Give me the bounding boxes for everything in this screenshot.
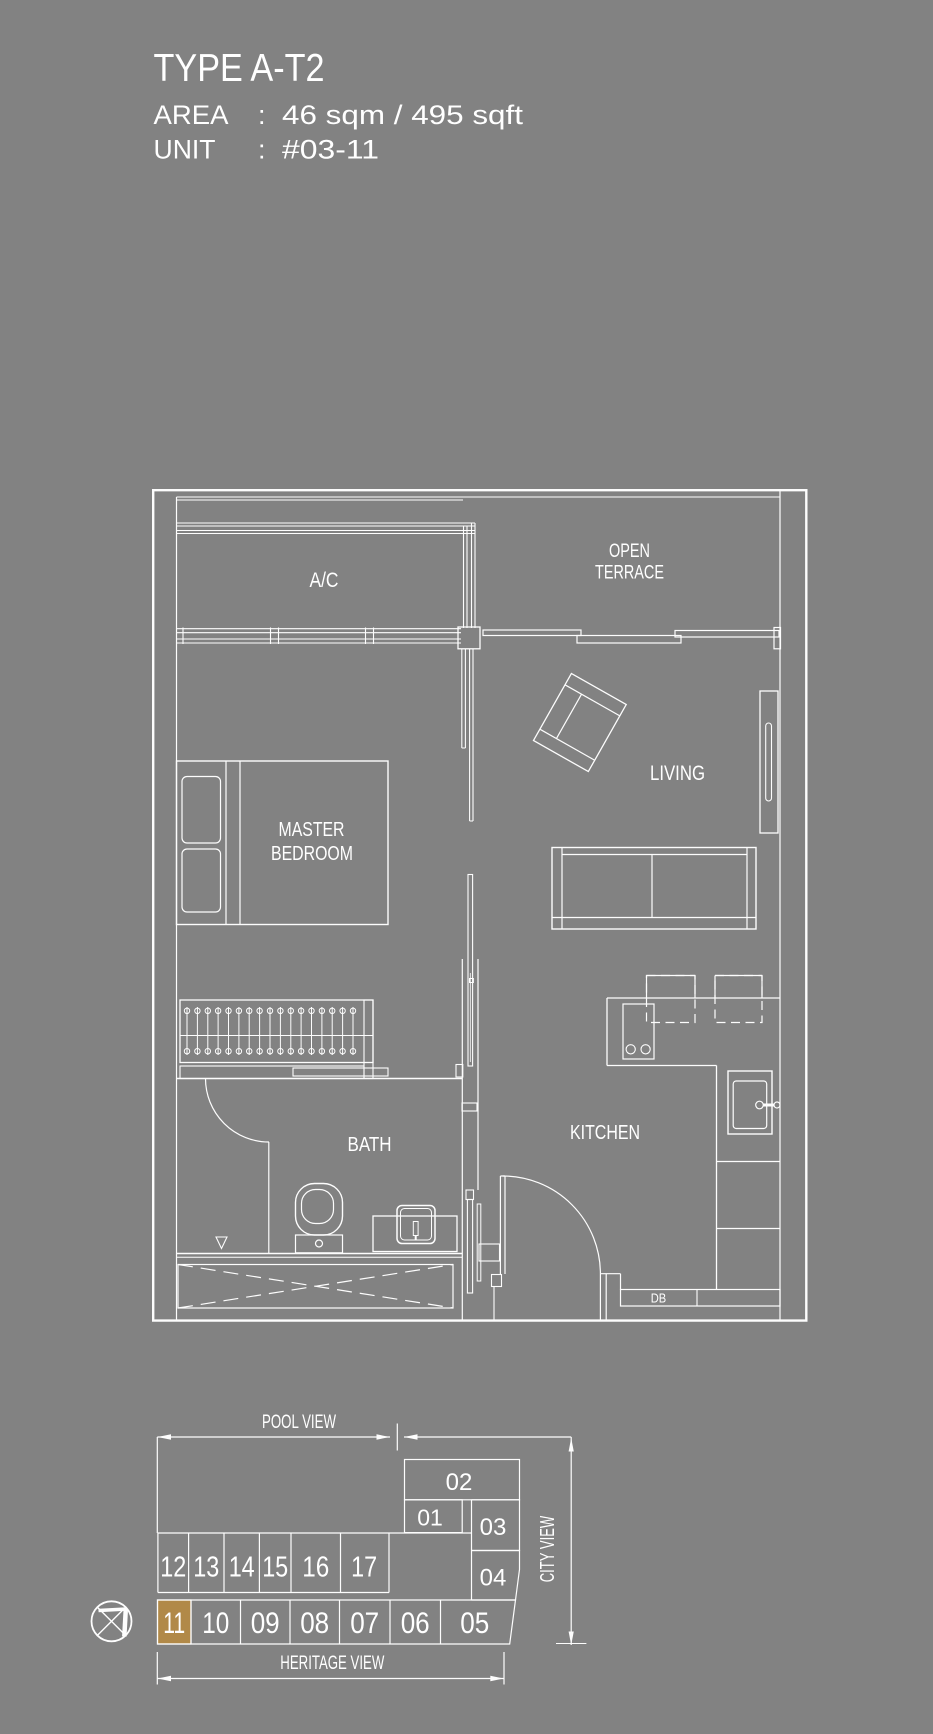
svg-text:11: 11: [163, 1607, 185, 1640]
svg-text:05: 05: [460, 1607, 489, 1640]
svg-text:TYPE A-T2: TYPE A-T2: [154, 47, 325, 90]
svg-text:04: 04: [480, 1565, 507, 1592]
svg-text:07: 07: [350, 1607, 379, 1640]
svg-text:08: 08: [300, 1607, 329, 1640]
svg-text:MASTER: MASTER: [279, 819, 345, 841]
svg-text:HERITAGE VIEW: HERITAGE VIEW: [280, 1652, 384, 1674]
svg-text:BATH: BATH: [348, 1134, 392, 1156]
svg-text:03: 03: [480, 1514, 507, 1541]
svg-text:16: 16: [302, 1552, 329, 1584]
svg-text:13: 13: [193, 1552, 219, 1584]
svg-text:10: 10: [202, 1607, 229, 1640]
svg-text:TERRACE: TERRACE: [595, 562, 664, 584]
svg-text:#03-11: #03-11: [282, 135, 379, 165]
svg-text:09: 09: [251, 1607, 280, 1640]
svg-text:14: 14: [229, 1552, 255, 1584]
svg-text:DB: DB: [651, 1292, 667, 1306]
svg-text:06: 06: [401, 1607, 430, 1640]
svg-text::: :: [258, 135, 266, 165]
svg-text:CITY VIEW: CITY VIEW: [537, 1516, 559, 1583]
svg-text:12: 12: [160, 1552, 186, 1584]
svg-text:OPEN: OPEN: [609, 540, 650, 562]
svg-text:17: 17: [351, 1552, 377, 1584]
svg-text:02: 02: [446, 1469, 473, 1496]
svg-text:A/C: A/C: [310, 569, 339, 592]
svg-text::: :: [258, 100, 266, 130]
svg-text:BEDROOM: BEDROOM: [271, 843, 353, 865]
svg-text:KITCHEN: KITCHEN: [570, 1122, 640, 1144]
svg-text:POOL VIEW: POOL VIEW: [262, 1412, 336, 1433]
svg-text:LIVING: LIVING: [650, 762, 705, 785]
svg-text:15: 15: [262, 1552, 288, 1584]
svg-text:AREA: AREA: [154, 100, 229, 130]
svg-text:UNIT: UNIT: [154, 135, 216, 165]
svg-text:46 sqm / 495 sqft: 46 sqm / 495 sqft: [282, 100, 524, 130]
svg-text:01: 01: [417, 1505, 443, 1531]
